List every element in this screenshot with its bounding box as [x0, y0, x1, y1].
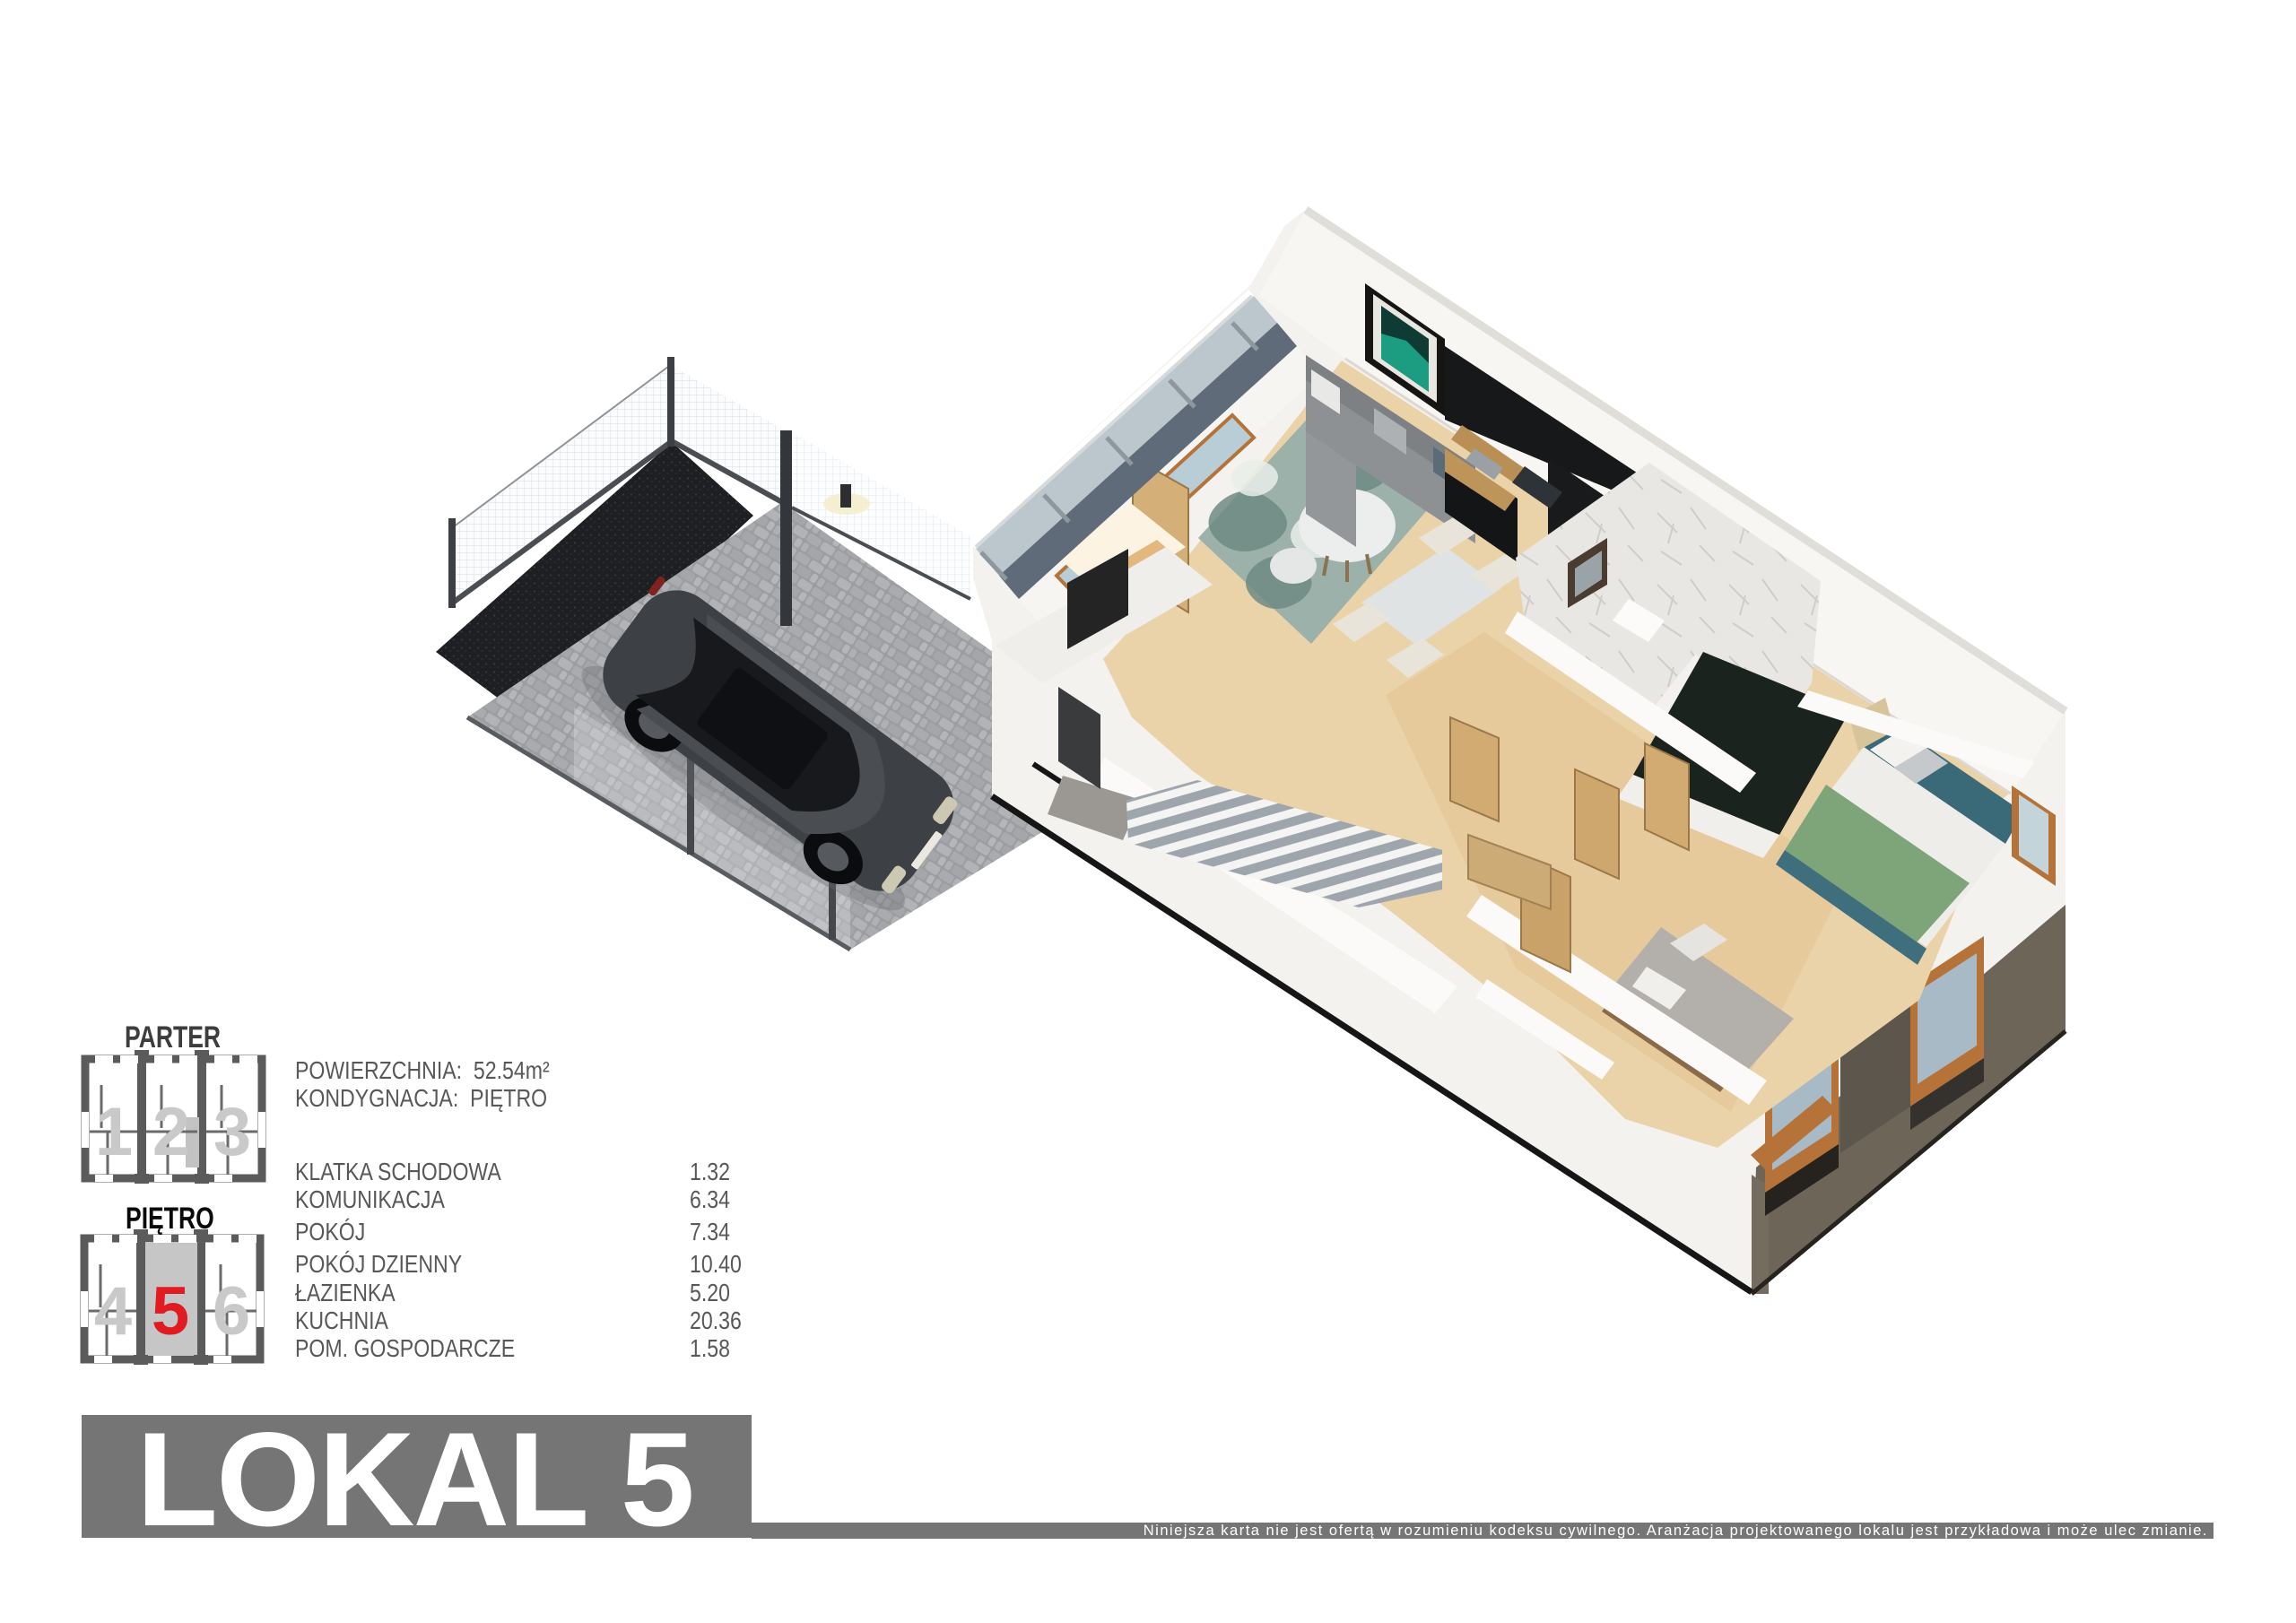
svg-text:3: 3	[213, 1094, 251, 1170]
svg-text:5: 5	[152, 1273, 189, 1350]
svg-text:4: 4	[94, 1273, 132, 1350]
svg-text:6: 6	[213, 1273, 250, 1350]
svg-text:1: 1	[95, 1094, 133, 1170]
svg-text:2: 2	[152, 1094, 190, 1170]
